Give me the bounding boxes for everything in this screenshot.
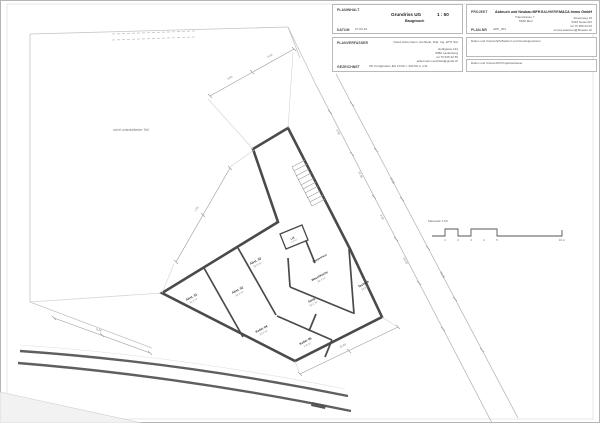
svg-text:4: 4 [483, 238, 485, 242]
gezeichnet-label: GEZEICHNET [337, 65, 360, 69]
datum-value: 27.03.23 [355, 28, 367, 32]
dim-value: 15.20 [402, 257, 409, 265]
svg-text:1: 1 [444, 238, 446, 242]
street-object [311, 402, 326, 409]
verfasser-name: Claus Ackermann, Architekt, Dipl. Ing. E… [393, 41, 458, 45]
scale-bar-label: Massstab 1:50 [428, 219, 448, 223]
projekt-name: Abbruch und Neubau MFH [495, 10, 540, 14]
projekt-label: PROJEKT [471, 10, 488, 14]
dim-value: 3.85 [227, 75, 234, 81]
signature-note-1: Datum und Unterschrift Bauherr und Grund… [471, 40, 541, 44]
dim-value: 7.25 [193, 205, 199, 212]
plannr-value: APP_001 [493, 28, 506, 32]
gezeichnet-value: OK Fertigboden EG ±0.00 = 432.56 m ü.M. [369, 65, 428, 69]
scale-bar: Massstab 1:50 1 2 3 4 5 10 m [428, 219, 566, 242]
titleblock-planinhalt: PLANINHALT Grundriss UG 1 : 50 Baugesuch… [332, 4, 463, 34]
sidewalk-area [0, 392, 142, 423]
plan-phase: Baugesuch [405, 19, 424, 23]
projekt-address-2: 5630 Muri [519, 20, 533, 24]
svg-text:2: 2 [457, 238, 459, 242]
signature-box-verfasser: Datum und Unterschrift Projektverfasser [466, 59, 597, 72]
titleblock-projekt: PROJEKT Abbruch und Neubau MFH Tramstras… [466, 4, 597, 34]
dashed-outline [112, 31, 196, 40]
signature-box-bauherr: Datum und Unterschrift Bauherr und Grund… [466, 37, 597, 57]
titleblock-planverfasser: PLANVERFASSER Claus Ackermann, Architekt… [332, 37, 463, 72]
drawing-sheet: 3.85 5.04 7.25 4.50 12.36 3.85 15.20 24.… [0, 0, 600, 423]
dim-value: 15.60 [339, 342, 347, 349]
site-note: nicht unterkellerter Teil [113, 128, 149, 132]
verfasser-address: Hohlgasse 134 5080 Laufenburg tel 76 545… [417, 47, 458, 63]
svg-text:5: 5 [496, 238, 498, 242]
dim-value: 18.40 [439, 271, 446, 279]
scale-bar-line [432, 229, 562, 236]
dim-value: 5.04 [267, 53, 274, 59]
datum-label: DATUM [337, 28, 350, 32]
planinhalt-label: PLANINHALT [337, 8, 359, 12]
dim-value: 4.50 [335, 129, 341, 136]
signature-note-2: Datum und Unterschrift Projektverfasser [471, 62, 522, 66]
dim-value: 3.85 [379, 214, 385, 221]
dim-value: 24.65 [389, 177, 396, 185]
bauherr-label: BAUHERR [541, 10, 559, 14]
scale-bar-ticks: 1 2 3 4 5 10 m [444, 238, 566, 242]
bauherr-address: Rosenweg 15 5432 Neuenhof tel 76 380 04 … [554, 16, 592, 32]
plan-title: Grundriss UG [391, 12, 421, 18]
bauherr-name: MACA Immo GmbH [559, 10, 592, 14]
planverfasser-label: PLANVERFASSER [337, 41, 368, 45]
dim-value: 12.36 [357, 171, 364, 179]
plan-scale: 1 : 50 [437, 12, 449, 18]
svg-text:3: 3 [470, 238, 472, 242]
plannr-label: PLAN-NR [471, 28, 487, 32]
verfasser-address-4: ackermann.architekt@gmail.ch [417, 59, 458, 63]
dim-value: 8.20 [96, 327, 103, 333]
building-outline [162, 128, 382, 361]
bauherr-address-4: emma.wassmer@bluewin.ch [554, 28, 592, 32]
svg-text:10 m: 10 m [559, 238, 566, 242]
